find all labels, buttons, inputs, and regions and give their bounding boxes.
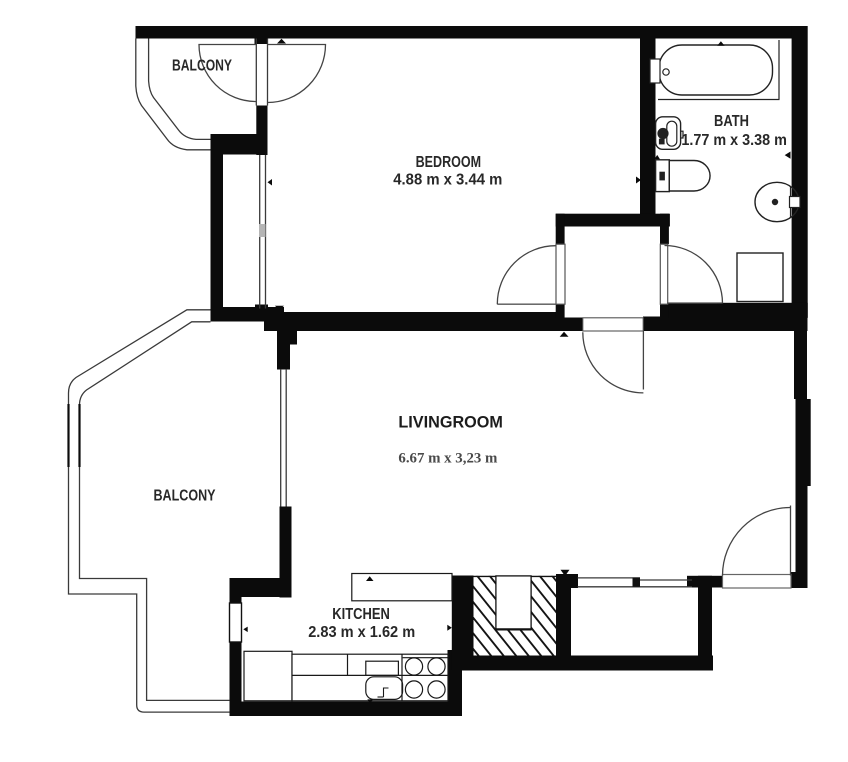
svg-text:BEDROOM: BEDROOM	[416, 154, 482, 171]
svg-text:4.88 m x 3.44 m: 4.88 m x 3.44 m	[393, 172, 502, 189]
svg-text:BALCONY: BALCONY	[154, 488, 216, 505]
svg-text:KITCHEN: KITCHEN	[332, 606, 390, 623]
svg-text:1.77 m x 3.38 m: 1.77 m x 3.38 m	[681, 132, 787, 149]
svg-text:BALCONY: BALCONY	[172, 58, 232, 75]
svg-text:LIVINGROOM: LIVINGROOM	[398, 414, 503, 432]
svg-text:2.83 m x 1.62 m: 2.83 m x 1.62 m	[308, 624, 415, 641]
svg-text:6.67 m x 3,23 m: 6.67 m x 3,23 m	[398, 451, 497, 467]
svg-text:BATH: BATH	[714, 113, 749, 130]
